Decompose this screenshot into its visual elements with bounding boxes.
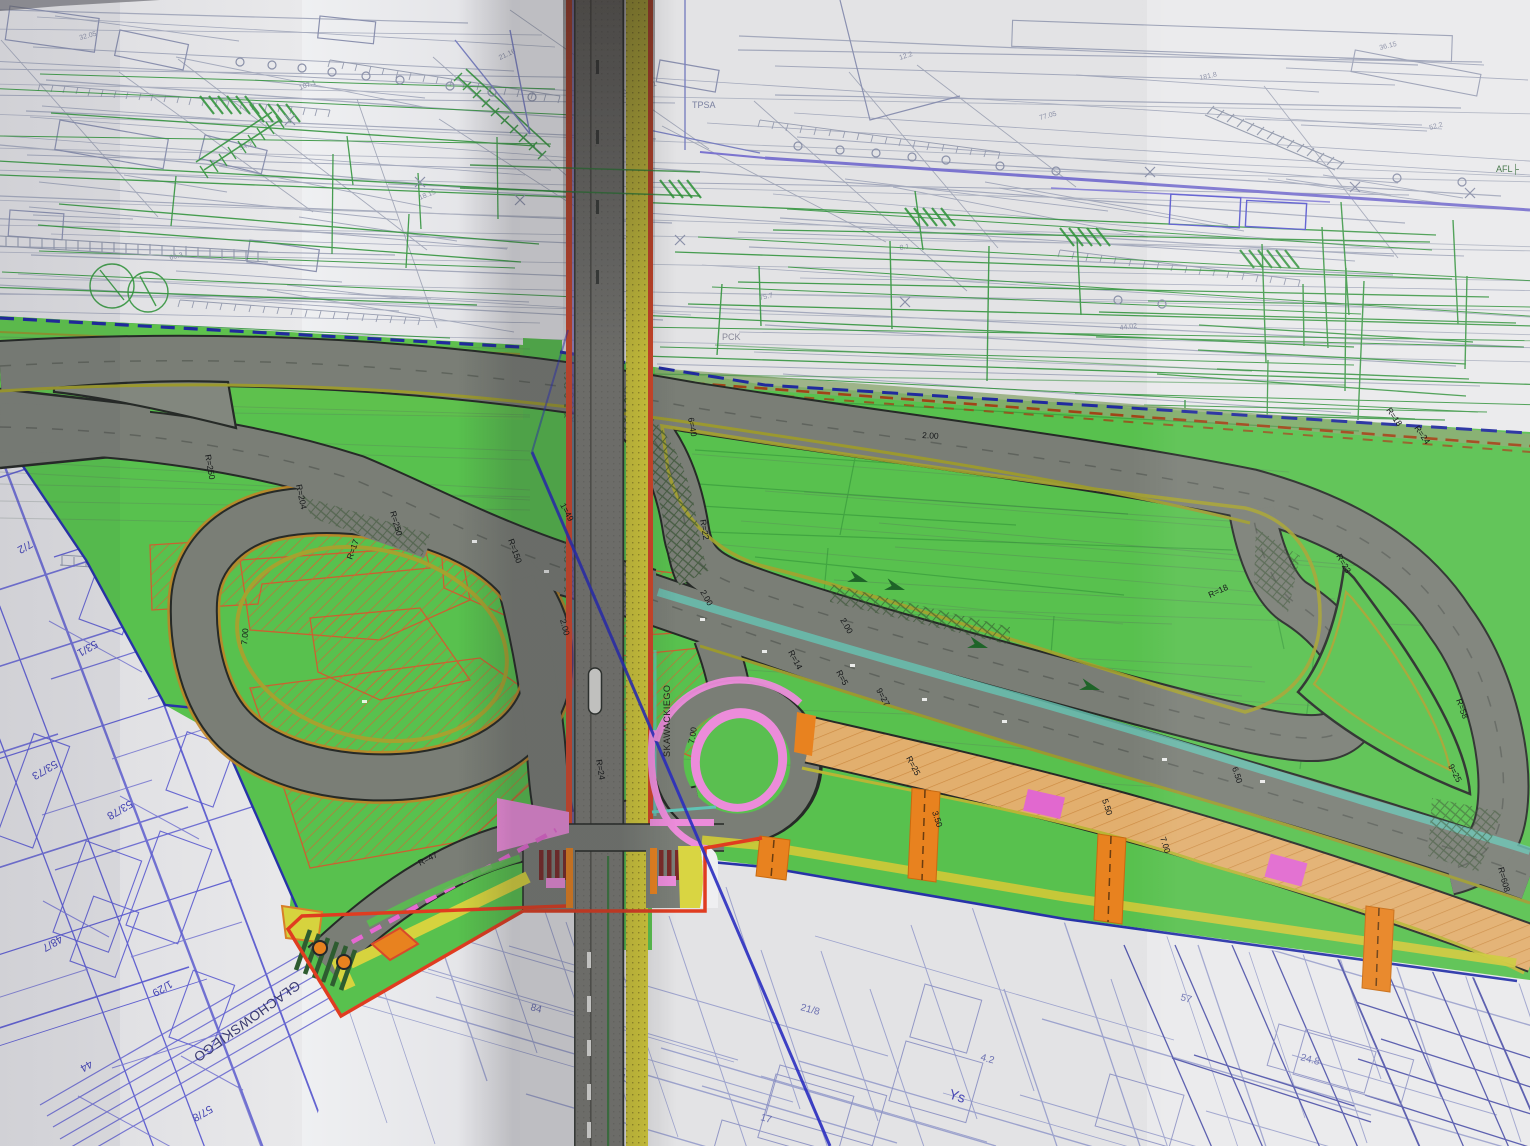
svg-text:TPSA: TPSA — [692, 100, 716, 110]
svg-text:PCK: PCK — [722, 332, 741, 342]
svg-text:SKAWACKIEGO: SKAWACKIEGO — [662, 685, 672, 757]
svg-text:7.00: 7.00 — [239, 628, 250, 646]
svg-text:2.00: 2.00 — [922, 430, 939, 441]
svg-text:AFL├: AFL├ — [1496, 163, 1520, 175]
